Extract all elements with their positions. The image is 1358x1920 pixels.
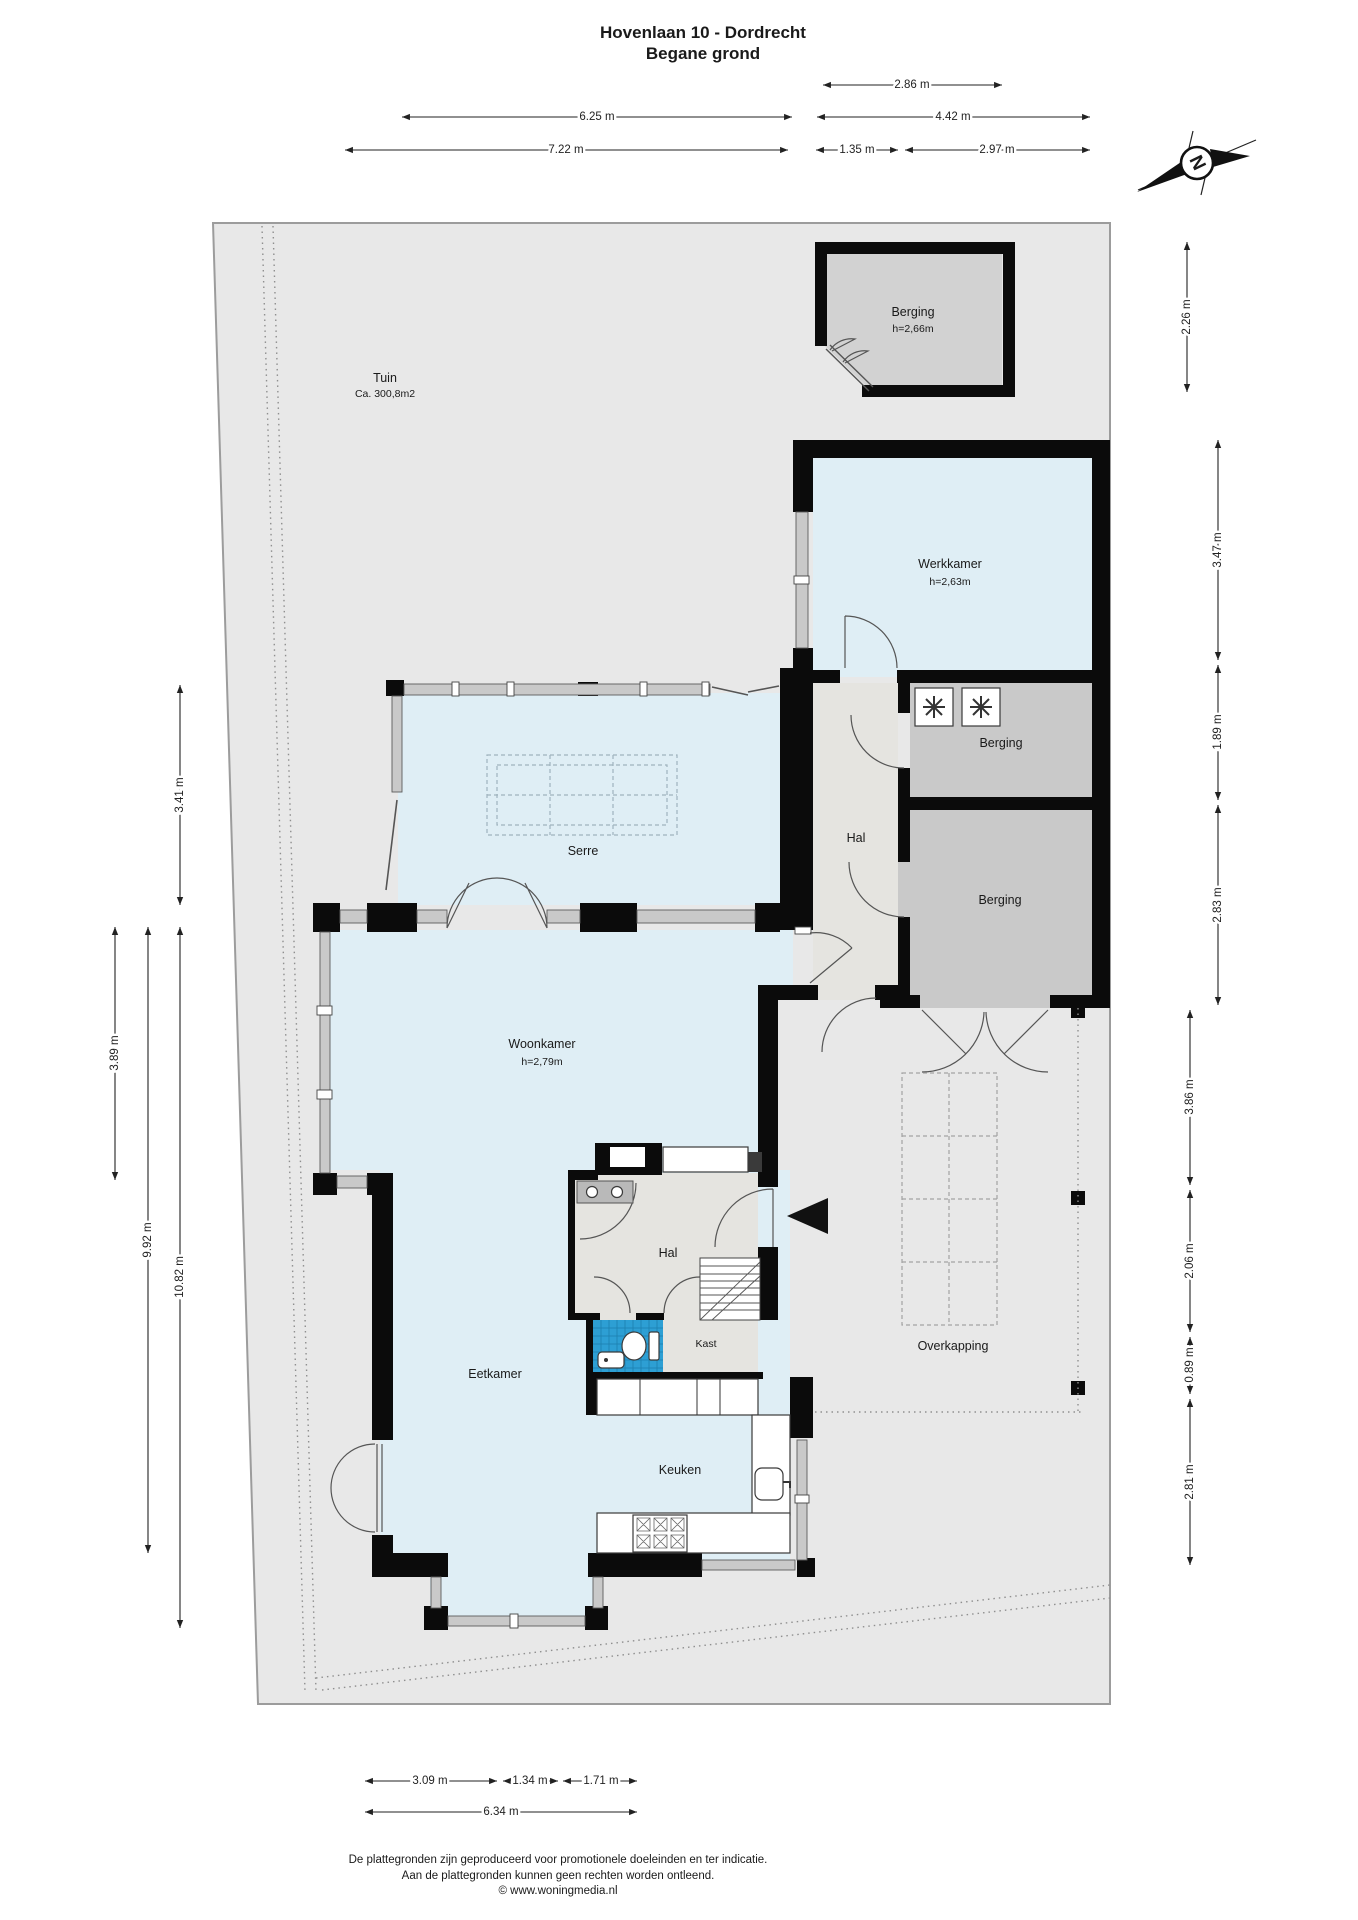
dryer-icon [970, 696, 992, 718]
room-label-eetkamer: Eetkamer [468, 1367, 522, 1381]
room-label-kast: Kast [695, 1338, 716, 1350]
room-label-berging1: Berging [979, 736, 1022, 750]
plan-subtitle: Begane grond [646, 44, 760, 63]
footer-copyright: © www.woningmedia.nl [498, 1885, 617, 1897]
dimensions-bottom: 3.09 m 1.34 m 1.71 m 6.34 m [365, 1775, 637, 1818]
footer-disclaimer-1: De plattegronden zijn geproduceerd voor … [349, 1854, 768, 1866]
dim-label: 2.06 m [1184, 1243, 1196, 1278]
dimensions-top: 2.86 m 6.25 m 4.42 m 7.22 m 1.35 m 2.97 … [345, 79, 1090, 156]
compass: N [1137, 131, 1256, 195]
dim-label: 3.86 m [1184, 1079, 1196, 1114]
dim-label: 3.89 m [109, 1035, 121, 1070]
serre-floor [398, 693, 780, 905]
room-area-tuin: Ca. 300,8m2 [355, 388, 415, 400]
footer-disclaimer-2: Aan de plattegronden kunnen geen rechten… [402, 1870, 715, 1882]
room-label-serre: Serre [568, 844, 599, 858]
dim-label: 1.71 m [583, 1775, 618, 1787]
dim-label: 2.81 m [1184, 1464, 1196, 1499]
dimensions-left: 3.41 m 3.89 m 9.92 m 10.82 m [109, 685, 186, 1628]
room-label-berging2: Berging [978, 893, 1021, 907]
dim-label: 3.09 m [412, 1775, 447, 1787]
dim-label: 2.83 m [1212, 887, 1224, 922]
plan-title: Hovenlaan 10 - Dordrecht [600, 23, 806, 42]
toilet-tank-icon [649, 1332, 659, 1360]
berging2-floor [898, 810, 1092, 1008]
room-label-keuken: Keuken [659, 1463, 701, 1477]
dim-label: 2.97 m [979, 144, 1014, 156]
dim-label: 3.47 m [1212, 532, 1224, 567]
room-label-hal-noord: Hal [847, 831, 866, 845]
floorplan-page: Hovenlaan 10 - Dordrecht Begane grond Tu… [0, 0, 1358, 1920]
toilet-bowl-icon [622, 1332, 646, 1360]
dim-label: 6.34 m [483, 1806, 518, 1818]
wall-stub [748, 1152, 762, 1172]
dim-label: 6.25 m [579, 111, 614, 123]
dim-label: 2.26 m [1181, 299, 1193, 334]
room-label-hal-zuid: Hal [659, 1246, 678, 1260]
room-height-werkkamer: h=2,63m [929, 576, 970, 588]
door-post [795, 927, 811, 934]
toilet-room [593, 1320, 663, 1372]
dim-label: 10.82 m [174, 1256, 186, 1298]
dim-label: 7.22 m [548, 144, 583, 156]
room-label-werkkamer: Werkkamer [918, 557, 982, 571]
dimensions-right: 2.26 m 3.47 m 1.89 m 2.83 m 3.86 m 2.06 … [1181, 242, 1224, 1565]
shed-floor [823, 253, 1002, 387]
basin-icon [587, 1187, 598, 1198]
dim-label: 1.34 m [512, 1775, 547, 1787]
dim-label: 2.86 m [894, 79, 929, 91]
staircase [700, 1258, 760, 1320]
room-label-overkapping: Overkapping [918, 1339, 989, 1353]
hal-basin-counter [577, 1181, 633, 1203]
room-label-woonkamer: Woonkamer [508, 1037, 575, 1051]
compass-needle-east [1210, 149, 1250, 167]
dim-label: 1.35 m [839, 144, 874, 156]
hob-icon [633, 1515, 687, 1552]
floorplan-drawing: Hovenlaan 10 - Dordrecht Begane grond Tu… [0, 0, 1358, 1920]
sideboard-cabinet [663, 1147, 748, 1172]
basin-icon [612, 1187, 623, 1198]
dim-label: 0.89 m [1184, 1347, 1196, 1382]
dim-label: 4.42 m [935, 111, 970, 123]
compass-needle-south [1137, 160, 1187, 192]
room-height-berging-tuin: h=2,66m [892, 323, 933, 335]
room-height-woonkamer: h=2,79m [521, 1056, 562, 1068]
room-label-berging-tuin: Berging [891, 305, 934, 319]
chimney-niche [610, 1147, 645, 1167]
washbasin-icon [598, 1352, 624, 1368]
dim-label: 3.41 m [174, 777, 186, 812]
dim-label: 1.89 m [1212, 714, 1224, 749]
eetkamer-bay-floor [430, 1555, 600, 1623]
washer-icon [923, 696, 945, 718]
dim-label: 9.92 m [142, 1222, 154, 1257]
room-label-tuin: Tuin [373, 371, 397, 385]
